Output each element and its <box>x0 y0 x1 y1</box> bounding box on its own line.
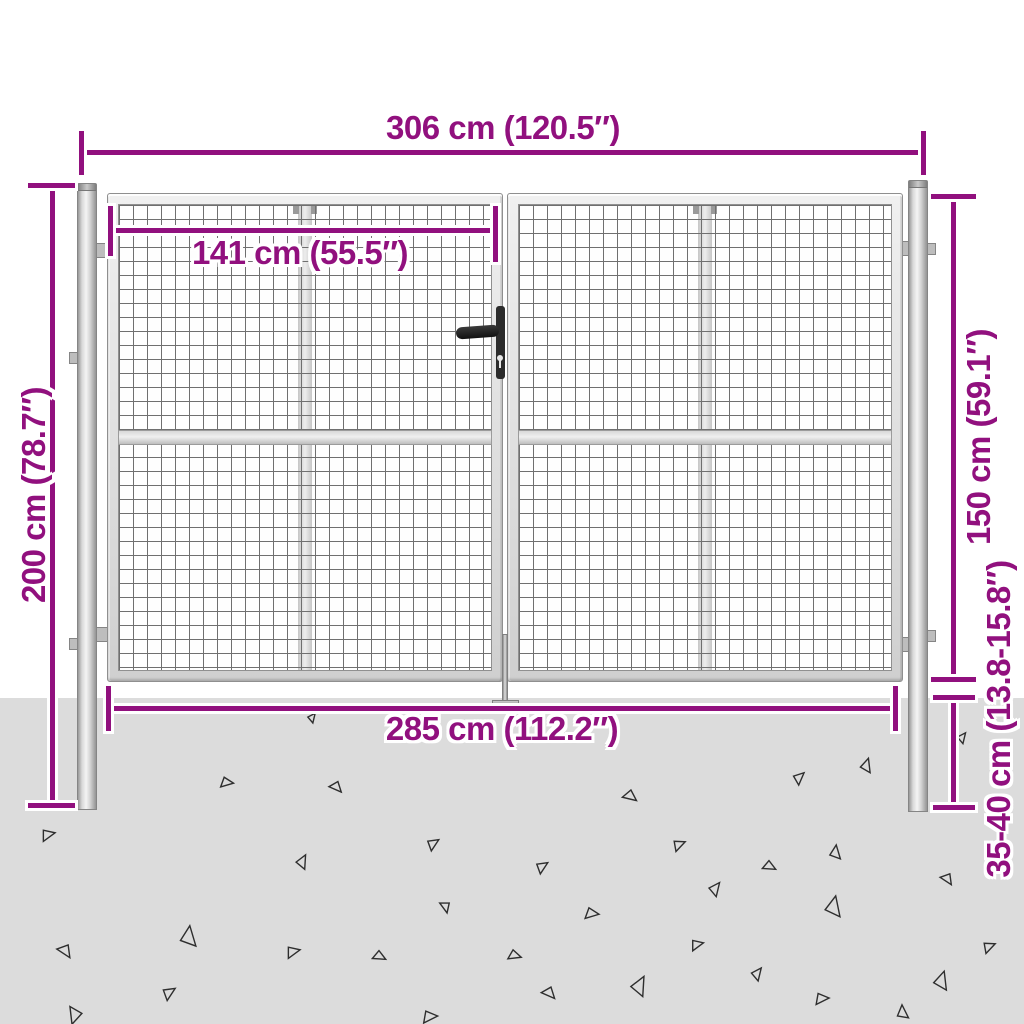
dimension-diagram: 306 cm (120.5″) 141 cm (55.5″) 200 cm (7… <box>0 0 1024 1024</box>
triangle-decoration <box>897 1005 908 1018</box>
dimension-tick <box>931 677 976 682</box>
triangle-decoration <box>307 711 319 723</box>
triangle-decoration <box>982 940 997 954</box>
dimension-line-ground-depth <box>951 697 956 809</box>
fence-connector-left-upper <box>69 352 78 364</box>
dimension-tick <box>933 805 975 810</box>
dimension-label-inner-width: 285 cm (112.2″) <box>386 711 618 747</box>
triangle-decoration <box>940 872 955 887</box>
triangle-decoration <box>57 943 74 961</box>
dimension-tick <box>106 686 111 731</box>
dimension-tick <box>79 131 84 175</box>
triangle-decoration <box>541 986 558 1003</box>
dimension-line-leaf-width <box>110 228 498 233</box>
post-cap <box>78 184 96 191</box>
dimension-tick <box>493 206 498 262</box>
gate-leaf-right <box>507 193 903 682</box>
dimension-tick <box>921 131 926 175</box>
dimension-label-post-height: 200 cm (78.7″) <box>16 387 52 603</box>
triangle-decoration <box>508 949 523 963</box>
triangle-decoration <box>41 828 56 841</box>
triangle-decoration <box>792 770 808 786</box>
triangle-decoration <box>956 731 969 744</box>
triangle-decoration <box>162 984 179 1000</box>
drop-rod <box>502 634 508 702</box>
triangle-decoration <box>372 950 387 965</box>
triangle-decoration <box>286 945 301 958</box>
triangle-decoration <box>629 973 651 996</box>
fence-connector-left-lower <box>69 638 78 650</box>
triangle-decoration <box>860 757 875 773</box>
triangle-decoration <box>750 965 766 981</box>
triangle-decoration <box>830 844 843 859</box>
triangle-decoration <box>816 993 829 1004</box>
triangle-decoration <box>426 836 441 851</box>
triangle-decoration <box>221 777 235 789</box>
dimension-label-gate-height: 150 cm (59.1″) <box>961 329 997 545</box>
triangle-decoration <box>933 969 952 990</box>
triangle-decoration <box>585 908 600 921</box>
dimension-label-leaf-width: 141 cm (55.5″) <box>192 235 408 271</box>
triangle-decoration <box>535 859 550 874</box>
triangle-decoration <box>424 1011 438 1023</box>
triangle-decoration <box>329 780 345 796</box>
dimension-line-gate-height <box>951 195 956 681</box>
triangle-decoration <box>180 925 199 947</box>
mesh-panel-right <box>518 204 892 671</box>
keyhole-icon <box>499 360 501 368</box>
dimension-tick <box>931 194 976 199</box>
mesh-panel-left <box>118 204 492 671</box>
triangle-decoration <box>64 1006 82 1024</box>
dimension-label-total-width: 306 cm (120.5″) <box>386 110 620 146</box>
gate-post-right <box>908 180 928 812</box>
triangle-decoration <box>295 853 311 870</box>
triangle-decoration <box>440 901 451 913</box>
dimension-label-ground-depth: 35-40 cm (13.8-15.8″) <box>981 560 1017 877</box>
dimension-tick <box>28 803 75 808</box>
triangle-decoration <box>824 894 845 917</box>
lock-plate <box>496 306 505 379</box>
dimension-tick <box>28 183 75 188</box>
post-cap <box>909 181 927 188</box>
gate-post-left <box>77 183 97 810</box>
dimension-tick <box>893 686 898 731</box>
triangle-decoration <box>762 860 777 875</box>
dimension-tick <box>933 695 975 700</box>
triangle-decoration <box>622 789 639 806</box>
mid-rail <box>518 430 892 445</box>
dimension-line-total-width <box>81 150 925 155</box>
fence-connector-right-upper <box>927 243 936 255</box>
mid-rail <box>118 430 492 445</box>
triangle-decoration <box>708 880 725 897</box>
fence-connector-right-lower <box>927 630 936 642</box>
dimension-tick <box>108 206 113 256</box>
triangle-decoration <box>672 838 687 852</box>
triangle-decoration <box>691 939 705 951</box>
